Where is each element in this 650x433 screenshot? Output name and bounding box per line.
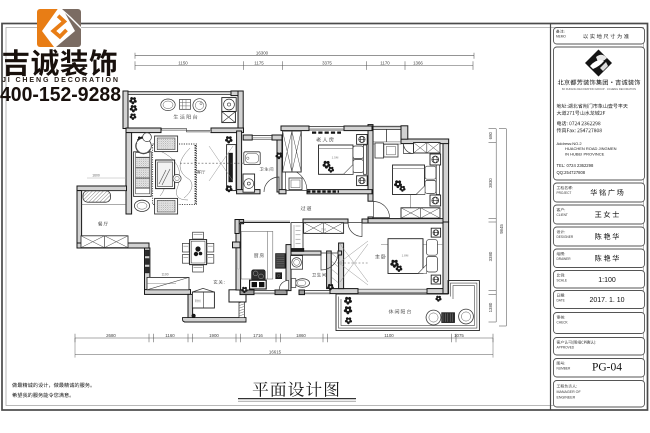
svg-text:CLIENT: CLIENT <box>557 213 568 217</box>
svg-text:1366: 1366 <box>413 60 423 65</box>
svg-text:1380: 1380 <box>488 302 493 312</box>
svg-text:16615: 16615 <box>269 349 282 354</box>
svg-text:MEMO: MEMO <box>556 35 566 39</box>
svg-text:9845: 9845 <box>499 224 504 234</box>
svg-text:APPROVED: APPROVED <box>557 346 575 350</box>
svg-text:PROJECT: PROJECT <box>557 191 572 195</box>
svg-text:1100: 1100 <box>384 333 394 338</box>
svg-text:QQ:254727808: QQ:254727808 <box>557 170 586 175</box>
svg-text:16300: 16300 <box>256 51 269 56</box>
svg-text:IN HUBEI PROVINCE: IN HUBEI PROVINCE <box>565 151 605 156</box>
svg-text:SCALE: SCALE <box>557 279 567 283</box>
svg-text:BJ DUFANG DECORATION GROUP · J: BJ DUFANG DECORATION GROUP · JICHENG DEC… <box>562 87 636 91</box>
svg-text:680: 680 <box>488 131 493 139</box>
svg-text:1.5M: 1.5M <box>332 156 339 160</box>
svg-text:1600: 1600 <box>92 173 100 177</box>
svg-text:1.8M: 1.8M <box>402 253 409 257</box>
svg-text:TEL: 0724 2362298: TEL: 0724 2362298 <box>557 163 594 168</box>
svg-text:ENGINEER: ENGINEER <box>557 395 576 399</box>
svg-text:1075: 1075 <box>454 333 464 338</box>
svg-text:2680: 2680 <box>106 333 116 338</box>
svg-text:CHECK: CHECK <box>557 321 569 325</box>
svg-text:1175: 1175 <box>254 60 264 65</box>
svg-text:1860: 1860 <box>296 333 306 338</box>
svg-text:1170: 1170 <box>380 60 390 65</box>
svg-text:DRAWER: DRAWER <box>557 257 572 261</box>
svg-text:DATE: DATE <box>557 299 565 303</box>
svg-text:750: 750 <box>321 228 326 232</box>
svg-text:3830: 3830 <box>488 178 493 188</box>
svg-text:DESIGNER: DESIGNER <box>557 235 574 239</box>
svg-text:1716: 1716 <box>253 333 263 338</box>
svg-text:3375: 3375 <box>322 60 332 65</box>
svg-text:3380: 3380 <box>488 251 493 261</box>
svg-text:400-152-9288: 400-152-9288 <box>0 83 121 106</box>
svg-text:1160: 1160 <box>165 333 175 338</box>
svg-text:MANAGER OF: MANAGER OF <box>557 390 582 394</box>
svg-text:1100: 1100 <box>161 272 168 276</box>
svg-text:1:100: 1:100 <box>598 277 616 284</box>
svg-text:1900: 1900 <box>209 333 219 338</box>
svg-text:1150: 1150 <box>178 60 188 65</box>
svg-text:NUMBER: NUMBER <box>557 367 572 371</box>
svg-text:2017. 1. 10: 2017. 1. 10 <box>589 297 624 304</box>
svg-text:PG-04: PG-04 <box>592 361 622 373</box>
